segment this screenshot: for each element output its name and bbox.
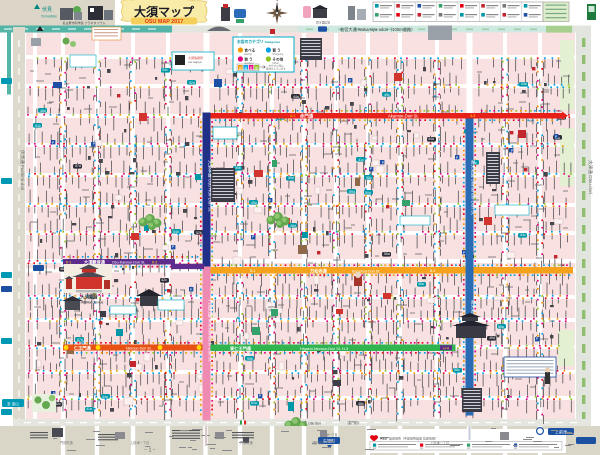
svg-text:買: 買 xyxy=(244,65,247,70)
svg-text:H-4: H-4 xyxy=(443,346,449,350)
svg-text:大須観音: 大須観音 xyxy=(80,293,98,300)
svg-text:42c: 42c xyxy=(55,402,61,406)
svg-text:55b: 55b xyxy=(235,166,241,170)
svg-text:上前津: 上前津 xyxy=(555,428,567,434)
svg-text:59b: 59b xyxy=(247,357,253,361)
svg-text:東仁王門通: 東仁王門通 xyxy=(230,345,252,352)
svg-text:53b: 53b xyxy=(521,82,527,86)
svg-text:大津通 Otsu-dori: 大津通 Otsu-dori xyxy=(587,160,594,194)
svg-text:51c: 51c xyxy=(35,124,41,128)
svg-text:上前津一丁目: 上前津一丁目 xyxy=(130,440,149,445)
svg-text:新天地通 Shintenchi-Dori St.: 新天地通 Shintenchi-Dori St. xyxy=(469,160,476,215)
svg-text:伏見: 伏見 xyxy=(42,6,52,13)
svg-text:（裏門前）: （裏門前） xyxy=(345,420,361,425)
svg-text:仁王門通: 仁王門通 xyxy=(74,345,92,352)
svg-text:49d: 49d xyxy=(489,336,495,340)
svg-text:58c: 58c xyxy=(454,368,460,372)
svg-text:設置場所（中区役所設置 位置情報）: 設置場所（中区役所設置 位置情報） xyxy=(389,436,438,441)
svg-text:買 う: 買 う xyxy=(271,47,280,52)
svg-text:4-3: 4-3 xyxy=(470,114,475,118)
svg-text:54b: 54b xyxy=(173,230,179,234)
svg-text:57d: 57d xyxy=(75,164,81,168)
svg-text:万松寺通: 万松寺通 xyxy=(309,267,328,274)
svg-text:Eating: Eating xyxy=(244,52,252,56)
svg-text:色分けしています: 色分けしています xyxy=(266,67,286,71)
svg-text:41c: 41c xyxy=(358,158,364,162)
svg-text:osu.nagoya: osu.nagoya xyxy=(188,61,202,64)
svg-text:OSU MAP 2017: OSU MAP 2017 xyxy=(145,19,184,25)
svg-text:食: 食 xyxy=(239,65,242,70)
svg-text:54c: 54c xyxy=(520,233,526,237)
svg-text:Shopping: Shopping xyxy=(272,52,284,56)
svg-text:食べる: 食べる xyxy=(244,47,255,52)
svg-text:44d: 44d xyxy=(428,137,434,141)
svg-text:57d: 57d xyxy=(77,338,83,342)
svg-text:Akamon-Dori St.: Akamon-Dori St. xyxy=(388,113,419,118)
svg-text:48c: 48c xyxy=(358,402,364,406)
svg-text:49a: 49a xyxy=(251,201,257,205)
svg-text:42c: 42c xyxy=(161,278,167,282)
svg-text:門前町通 Monzenmachi-Dori St.: 門前町通 Monzenmachi-Dori St. xyxy=(206,300,213,362)
svg-text:58c: 58c xyxy=(366,176,372,180)
svg-text:Niomon-Dori St.: Niomon-Dori St. xyxy=(126,347,152,351)
svg-text:46d: 46d xyxy=(290,224,296,228)
svg-text:Higashi-Niomon-Dori St. H-3: Higashi-Niomon-Dori St. H-3 xyxy=(300,347,348,351)
svg-text:59d: 59d xyxy=(349,190,355,194)
svg-text:（裏門前）: （裏門前） xyxy=(310,440,326,445)
svg-text:門前町通: 門前町通 xyxy=(60,440,74,445)
svg-text:49c: 49c xyxy=(384,93,390,97)
svg-text:大須マップ: 大須マップ xyxy=(134,4,195,19)
svg-text:51a: 51a xyxy=(251,401,257,405)
svg-text:B-3: B-3 xyxy=(430,269,435,273)
svg-text:46a: 46a xyxy=(418,282,424,286)
svg-text:To Fushimi: To Fushimi xyxy=(41,15,57,19)
svg-text:44a: 44a xyxy=(102,395,108,399)
svg-text:伏見通 Fushimi-dori: 伏見通 Fushimi-dori xyxy=(19,150,26,190)
svg-text:その他: その他 xyxy=(272,56,283,61)
svg-text:52d: 52d xyxy=(189,81,195,85)
svg-text:装 う: 装 う xyxy=(243,56,252,61)
svg-text:至 金山: 至 金山 xyxy=(7,401,19,406)
svg-text:K-1: K-1 xyxy=(66,260,71,264)
svg-text:44a: 44a xyxy=(293,95,299,99)
svg-text:大須情報局: 大須情報局 xyxy=(188,55,203,60)
svg-text:お店のカテゴリ Categories: お店のカテゴリ Categories xyxy=(237,39,280,44)
svg-text:K-2: K-2 xyxy=(152,260,157,264)
svg-text:若宮大通 Wakamiya-odori（100m道路）: 若宮大通 Wakamiya-odori（100m道路） xyxy=(340,26,415,33)
svg-text:赤門通: 赤門通 xyxy=(300,112,314,119)
svg-text:装: 装 xyxy=(250,65,253,70)
svg-text:Osu-Kannon-Dori St.: Osu-Kannon-Dori St. xyxy=(112,261,145,265)
svg-text:56a: 56a xyxy=(384,252,390,256)
svg-text:41a: 41a xyxy=(86,407,92,411)
svg-text:B-1: B-1 xyxy=(250,269,255,273)
svg-text:名古屋市科学館 プラネタリウム: 名古屋市科学館 プラネタリウム xyxy=(63,20,106,25)
svg-text:50d: 50d xyxy=(365,191,371,195)
svg-text:他: 他 xyxy=(255,65,258,70)
svg-text:− 1 −: − 1 − xyxy=(144,448,155,454)
svg-text:52b: 52b xyxy=(196,231,202,235)
svg-text:招き猫広場: 招き猫広場 xyxy=(316,21,330,25)
svg-text:54c: 54c xyxy=(162,68,168,72)
svg-text:46d: 46d xyxy=(40,109,46,113)
svg-text:上前津一丁目: 上前津一丁目 xyxy=(430,440,449,445)
svg-text:55d: 55d xyxy=(288,176,294,180)
svg-text:4-1: 4-1 xyxy=(290,114,295,118)
svg-text:56a: 56a xyxy=(498,325,504,329)
